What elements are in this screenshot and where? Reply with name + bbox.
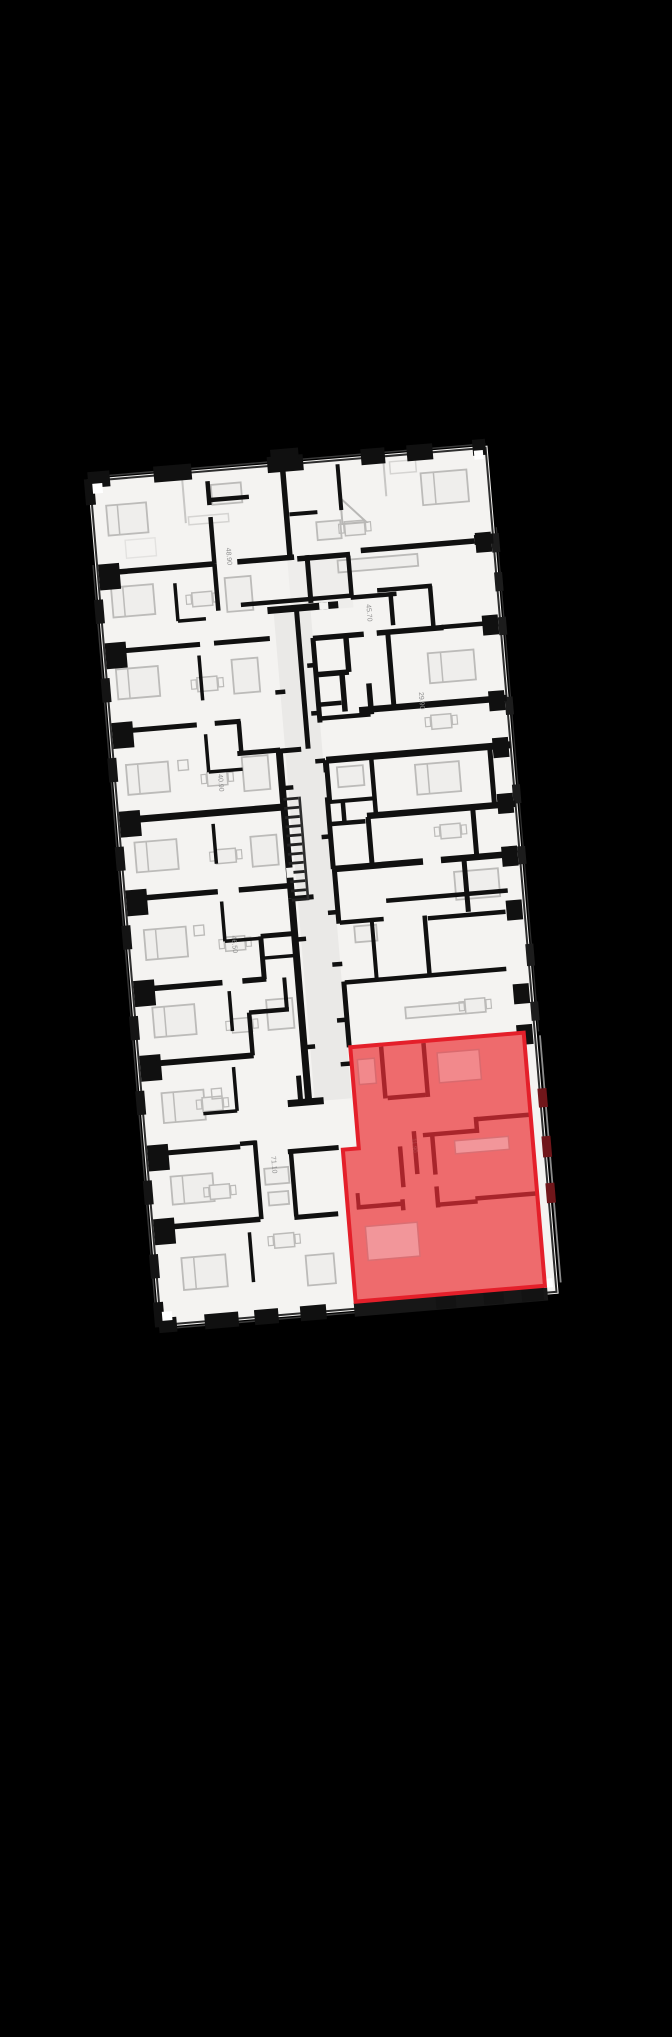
svg-text:45.70: 45.70	[364, 604, 372, 622]
svg-text:40.90: 40.90	[216, 774, 224, 792]
svg-text:29.90: 29.90	[417, 692, 425, 710]
svg-text:11.90: 11.90	[410, 1138, 417, 1154]
svg-text:46.50: 46.50	[230, 935, 238, 953]
svg-text:71.10: 71.10	[269, 1156, 277, 1174]
svg-text:48.90: 48.90	[224, 547, 232, 565]
